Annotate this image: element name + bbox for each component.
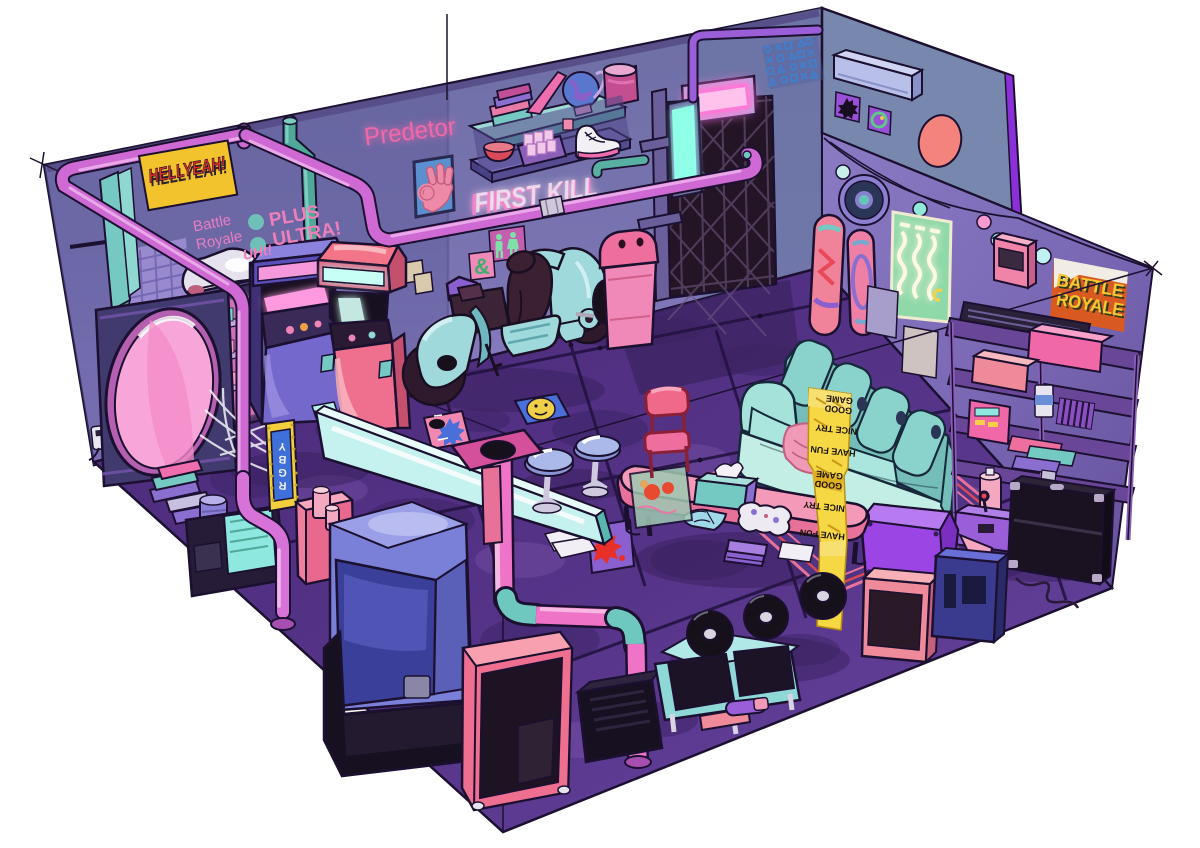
svg-text:R: R <box>278 479 287 492</box>
svg-text:G: G <box>278 466 287 479</box>
svg-text:B: B <box>278 453 287 466</box>
svg-text:&: & <box>474 254 490 279</box>
